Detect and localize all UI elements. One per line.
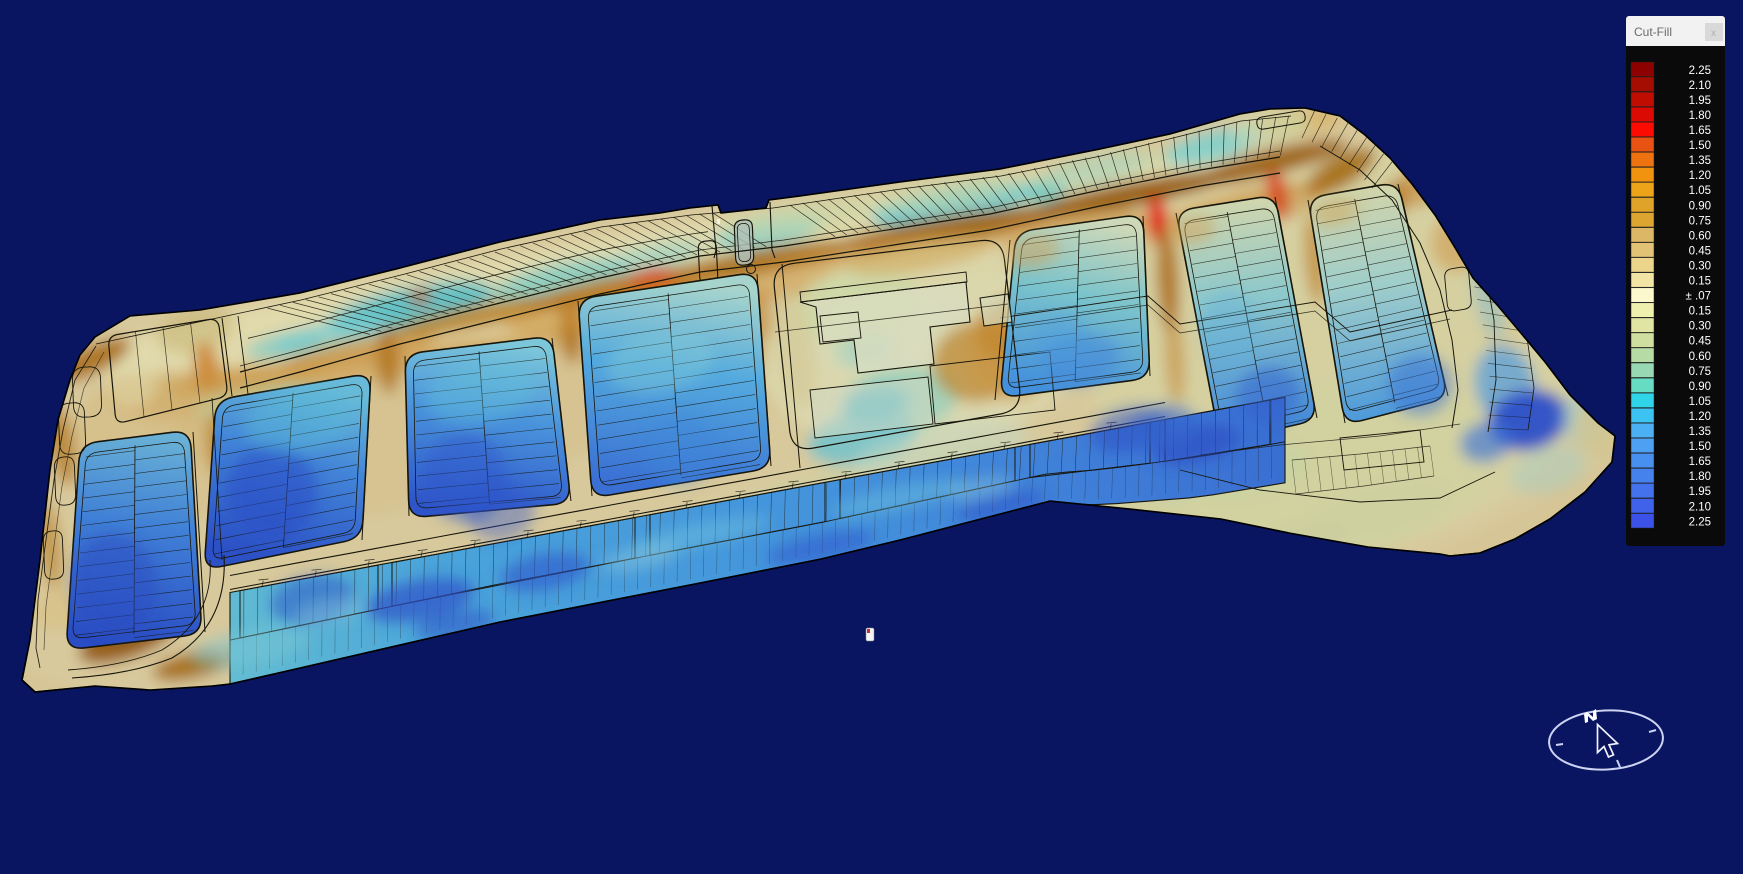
svg-text:0.75: 0.75 <box>1689 215 1711 227</box>
svg-text:1.05: 1.05 <box>1689 185 1711 197</box>
svg-text:0.30: 0.30 <box>1689 260 1711 272</box>
svg-text:0.60: 0.60 <box>1689 351 1711 363</box>
svg-text:1.80: 1.80 <box>1689 110 1711 122</box>
svg-text:1.95: 1.95 <box>1689 486 1711 498</box>
svg-text:1.20: 1.20 <box>1689 411 1711 423</box>
svg-text:2.25: 2.25 <box>1689 516 1711 528</box>
svg-text:0.45: 0.45 <box>1689 245 1711 257</box>
svg-text:0.60: 0.60 <box>1689 230 1711 242</box>
svg-text:1.80: 1.80 <box>1689 471 1711 483</box>
svg-text:Cut-Fill: Cut-Fill <box>1634 25 1672 39</box>
svg-text:1.95: 1.95 <box>1689 95 1711 107</box>
svg-text:0.75: 0.75 <box>1689 366 1711 378</box>
svg-text:2.10: 2.10 <box>1689 501 1711 513</box>
svg-text:0.90: 0.90 <box>1689 200 1711 212</box>
svg-text:1.50: 1.50 <box>1689 441 1711 453</box>
svg-text:1.65: 1.65 <box>1689 125 1711 137</box>
svg-text:± .07: ± .07 <box>1686 291 1712 303</box>
svg-text:1.65: 1.65 <box>1689 456 1711 468</box>
svg-text:2.25: 2.25 <box>1689 65 1711 77</box>
svg-text:1.05: 1.05 <box>1689 396 1711 408</box>
svg-text:1.35: 1.35 <box>1689 426 1711 438</box>
svg-text:x: x <box>1711 28 1716 39</box>
svg-text:0.15: 0.15 <box>1689 306 1711 318</box>
svg-text:1.20: 1.20 <box>1689 170 1711 182</box>
svg-text:0.30: 0.30 <box>1689 321 1711 333</box>
svg-text:2.10: 2.10 <box>1689 80 1711 92</box>
svg-text:0.15: 0.15 <box>1689 276 1711 288</box>
svg-text:1.50: 1.50 <box>1689 140 1711 152</box>
svg-text:0.90: 0.90 <box>1689 381 1711 393</box>
svg-text:0.45: 0.45 <box>1689 336 1711 348</box>
svg-text:1.35: 1.35 <box>1689 155 1711 167</box>
